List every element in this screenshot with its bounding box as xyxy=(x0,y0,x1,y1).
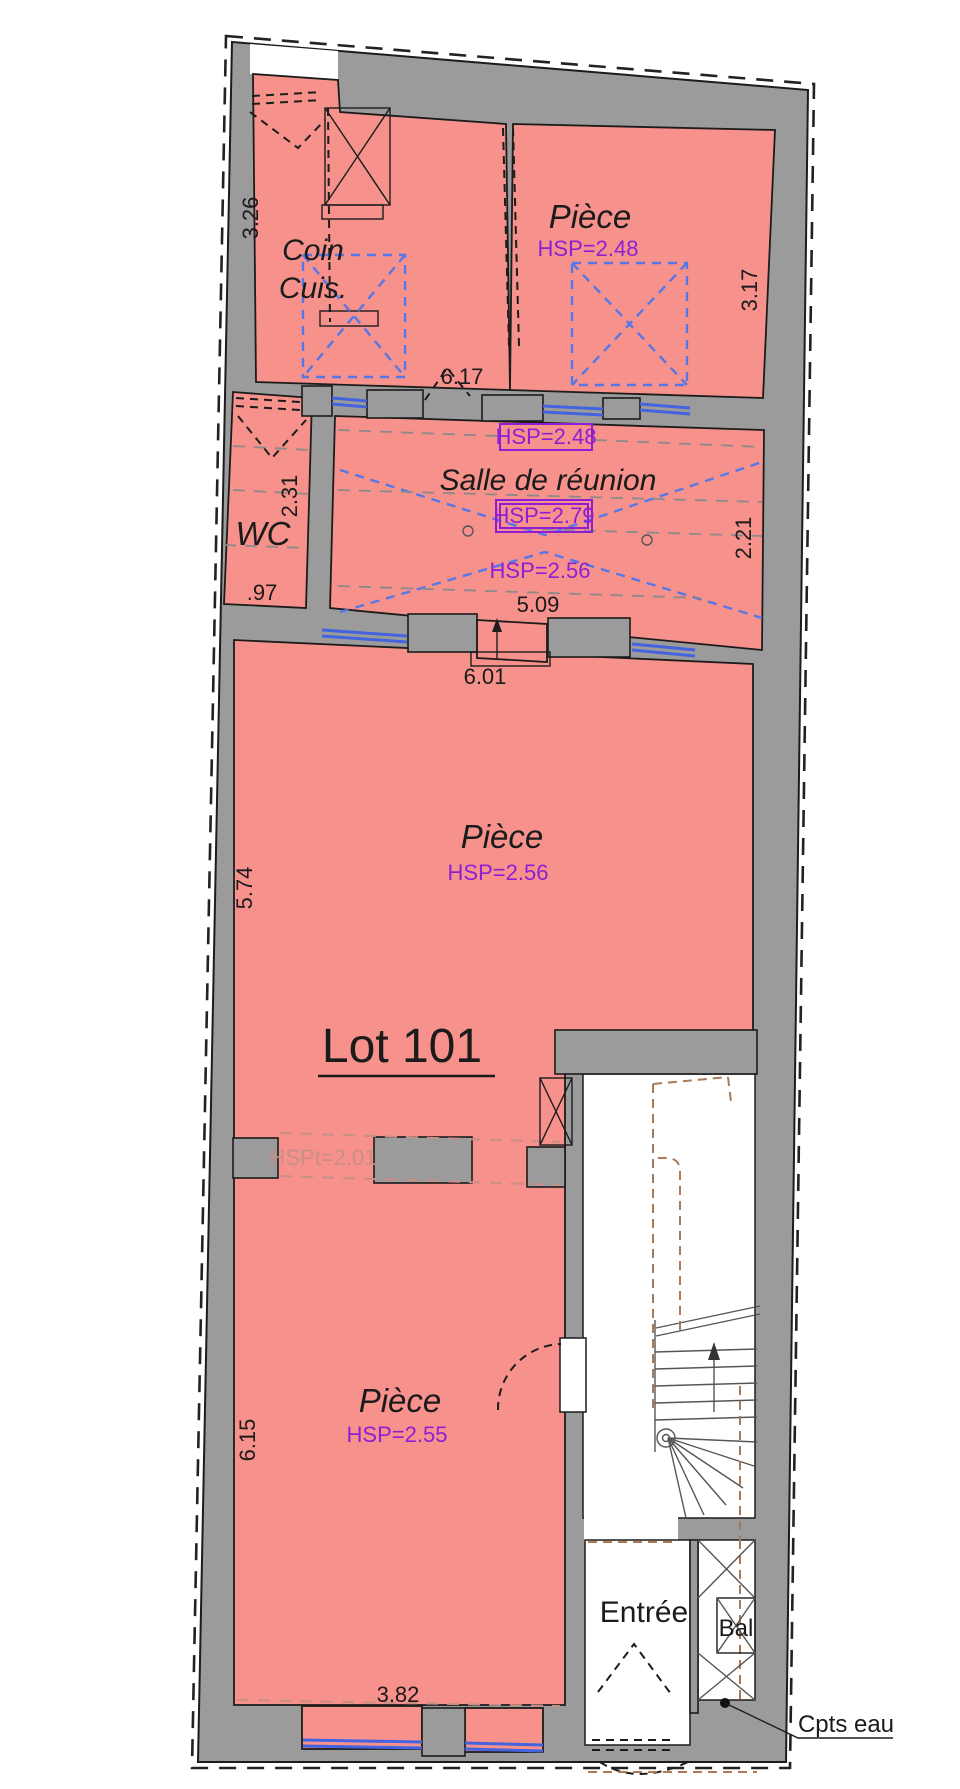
stair-block-wall xyxy=(555,1030,757,1074)
label-salle-hsp-248: HSP=2.48 xyxy=(496,424,597,449)
dim-6-15: 6.15 xyxy=(235,1419,260,1462)
window-bottom-1b xyxy=(303,1746,422,1748)
dim-2-21: 2.21 xyxy=(731,517,756,560)
floor-plan: Coin Cuis. Pièce HSP=2.48 HSP=2.48 Salle… xyxy=(0,0,960,1789)
floor-plan-page: Coin Cuis. Pièce HSP=2.48 HSP=2.48 Salle… xyxy=(0,0,960,1789)
dim-0-97: .97 xyxy=(247,580,278,605)
label-hspt: HSPt=2.01 xyxy=(269,1145,376,1170)
label-salle-hsp-256: HSP=2.56 xyxy=(490,558,591,583)
label-salle-hsp-279: HSP=2.79 xyxy=(494,503,595,528)
window-bottom-2b xyxy=(465,1749,543,1751)
pier-b xyxy=(367,390,423,418)
dim-3-26: 3.26 xyxy=(238,197,263,240)
dim-2-31: 2.31 xyxy=(277,475,302,518)
hspt-pier-right xyxy=(527,1147,565,1187)
pier-f xyxy=(548,618,630,657)
label-salle: Salle de réunion xyxy=(440,464,657,497)
dim-3-82: 3.82 xyxy=(377,1682,420,1707)
label-wc: WC xyxy=(236,515,292,552)
label-coin: Coin xyxy=(282,234,344,267)
window-bottom-1 xyxy=(303,1740,422,1742)
room-piece-top xyxy=(510,124,775,398)
bottom-window-pier xyxy=(422,1708,465,1756)
label-piece-central-hsp: HSP=2.56 xyxy=(448,860,549,885)
pier-a xyxy=(302,386,332,416)
pier-c xyxy=(482,395,543,421)
pier-d xyxy=(603,398,640,419)
label-cuis: Cuis. xyxy=(279,272,347,305)
label-piece-bottom-hsp: HSP=2.55 xyxy=(347,1422,448,1447)
label-piece-central: Pièce xyxy=(461,818,544,855)
window-bottom-2 xyxy=(465,1743,543,1745)
label-piece-top-hsp: HSP=2.48 xyxy=(538,236,639,261)
dim-6-01: 6.01 xyxy=(464,664,507,689)
stairwell xyxy=(583,1074,755,1518)
label-entree: Entrée xyxy=(600,1596,688,1629)
label-cpts-eau: Cpts eau xyxy=(798,1711,894,1738)
dim-6-17: 6.17 xyxy=(441,364,484,389)
label-piece-bottom: Pièce xyxy=(359,1382,442,1419)
entree-right-wall xyxy=(690,1540,698,1713)
pier-e xyxy=(408,614,477,652)
label-lot-title: Lot 101 xyxy=(322,1020,482,1073)
stair-entree-connector xyxy=(584,1516,678,1542)
mid-opening xyxy=(477,620,547,662)
hspt-header xyxy=(374,1137,472,1183)
dim-5-09: 5.09 xyxy=(517,592,560,617)
dim-3-17: 3.17 xyxy=(737,269,762,312)
piece-entree-door-gap xyxy=(560,1338,586,1412)
entree-hall xyxy=(585,1540,690,1745)
label-piece-top: Pièce xyxy=(549,198,632,235)
label-bal: Bal xyxy=(719,1615,754,1642)
dim-5-74: 5.74 xyxy=(232,867,257,910)
